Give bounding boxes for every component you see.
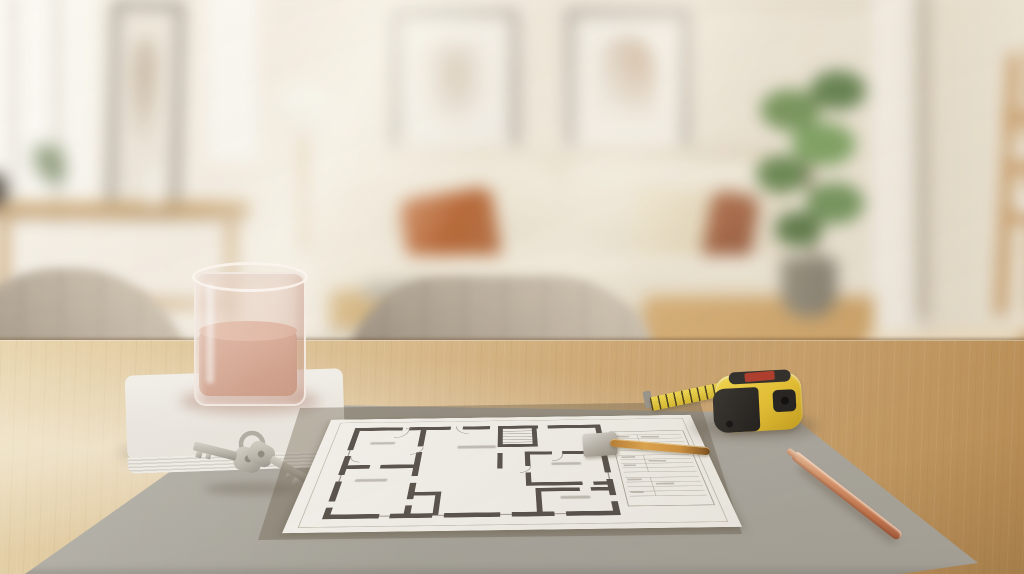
tape-measure-front-panel [712,387,760,433]
floor-plan-paper [282,415,742,533]
tape-rivet [726,420,733,427]
plan-window-lines [326,426,617,517]
plan-door-arcs [344,425,564,475]
floor-plan-drawing [282,415,742,533]
plan-stair-treads [503,428,533,442]
plan-room-labels [348,439,591,502]
tape-lock-button [772,389,796,412]
tape-lock-dot [781,396,789,404]
tape-measure-body [715,372,804,433]
floor-plan-sheet [282,338,742,530]
plan-border [298,418,727,527]
photo-living-room-scene [0,0,1024,574]
glass-highlight [206,284,214,384]
plan-walls [322,425,621,520]
